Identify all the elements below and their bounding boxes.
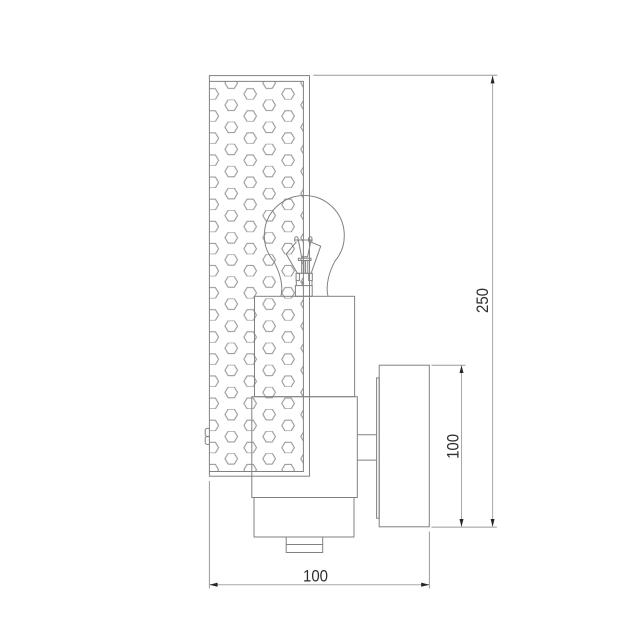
svg-text:100: 100	[303, 567, 328, 586]
svg-text:100: 100	[444, 434, 463, 459]
svg-text:250: 250	[473, 288, 492, 313]
